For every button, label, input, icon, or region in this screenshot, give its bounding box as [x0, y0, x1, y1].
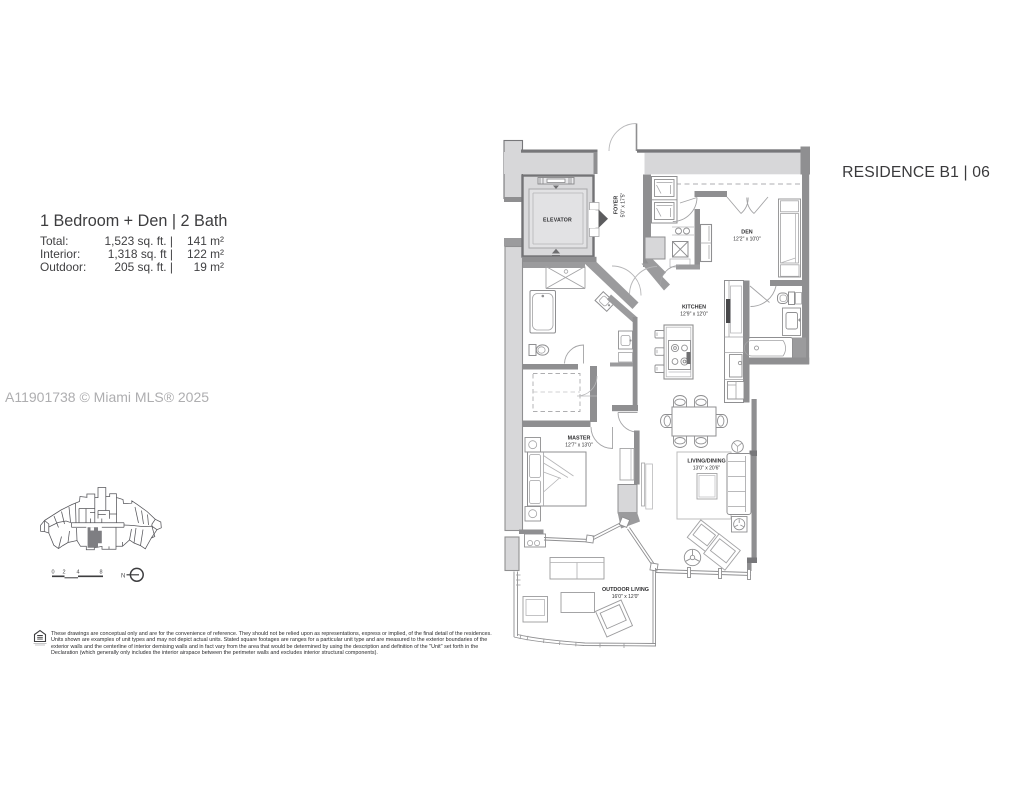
svg-text:0: 0: [52, 570, 55, 576]
svg-text:MASTER: MASTER: [568, 436, 591, 442]
svg-text:LIVING/DINING: LIVING/DINING: [687, 459, 725, 465]
svg-text:N: N: [121, 574, 125, 580]
svg-text:16'0" x 12'0": 16'0" x 12'0": [612, 594, 640, 600]
svg-text:2: 2: [63, 570, 66, 576]
svg-text:DEN: DEN: [741, 230, 752, 236]
svg-text:KITCHEN: KITCHEN: [682, 305, 706, 311]
svg-text:12'9" x 12'0": 12'9" x 12'0": [680, 312, 708, 318]
svg-text:ELEVATOR: ELEVATOR: [543, 218, 572, 224]
svg-text:4: 4: [77, 570, 80, 576]
svg-text:5'0" x 17'5": 5'0" x 17'5": [621, 192, 627, 217]
svg-text:12'2" x 10'0": 12'2" x 10'0": [733, 237, 761, 243]
svg-text:FOYER: FOYER: [614, 196, 620, 215]
svg-text:8: 8: [100, 570, 103, 576]
svg-text:13'0" x 20'6": 13'0" x 20'6": [693, 466, 721, 472]
svg-text:12'7" x 13'0": 12'7" x 13'0": [565, 443, 593, 449]
svg-text:OUTDOOR LIVING: OUTDOOR LIVING: [602, 587, 649, 593]
